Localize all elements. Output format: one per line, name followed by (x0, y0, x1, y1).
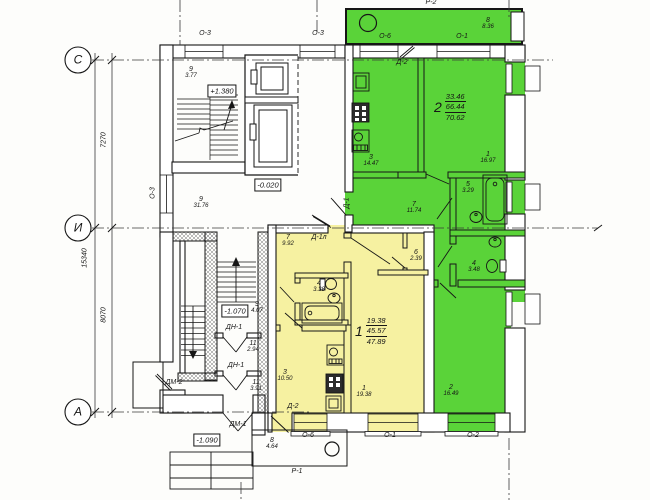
axis-label-i: И (74, 220, 83, 234)
apt1-living-area: 19.38 (366, 316, 387, 326)
room-label-vestibule-a: 112.94 (247, 340, 259, 354)
room-label-apt2-bath: 53.29 (462, 181, 474, 195)
level-entry: -1.090 (193, 434, 220, 447)
entrance-steps (170, 452, 253, 489)
mark-window-o3-a: О-3 (199, 30, 211, 37)
room-number: 6 (410, 249, 422, 256)
door-dn1-a (223, 337, 247, 352)
mark-door-dn1-b: ДН-1 (228, 362, 244, 369)
room-area: 19.38 (356, 392, 371, 398)
room-label-apt2-bedroom: 216.49 (443, 384, 458, 398)
level-lower: -1.070 (221, 305, 248, 318)
side-canopy (133, 362, 163, 408)
room-number: 9 (251, 301, 263, 308)
balcony-area (346, 9, 522, 44)
apartment-1-number: 1 (355, 323, 363, 339)
apt2-total-area: 70.62 (445, 113, 466, 122)
room-number: 8 (266, 437, 278, 444)
level-lobby: -0.020 (254, 179, 281, 192)
room-area: 3.77 (185, 73, 197, 79)
mark-door-d1-apt2: Д-1 (344, 197, 351, 208)
apt1-usable-area: 45.57 (366, 326, 387, 336)
room-area: 3.38 (313, 287, 325, 293)
mark-door-d1l-apt1: Д-1л (311, 234, 326, 241)
room-label-vestibule-b: 113.91 (250, 379, 262, 393)
elevator-small (251, 63, 288, 94)
room-number: 7 (407, 201, 422, 208)
room-number: 7 (282, 234, 294, 241)
mark-window-o3-left: О-3 (150, 187, 157, 199)
mark-railing-r1: Р-1 (292, 468, 303, 475)
dim-15340: 15340 (82, 248, 89, 267)
mark-window-o2-bottom: О-2 (467, 432, 479, 439)
room-number: 5 (462, 181, 474, 188)
room-number: 2 (443, 384, 458, 391)
room-label-stair-lower: 94.07 (251, 301, 263, 315)
room-label-apt2-living: 116.97 (480, 151, 495, 165)
room-area: 2.94 (247, 347, 259, 353)
apartment-2-label: 2 33.46 66.44 70.62 (434, 92, 466, 122)
elevator-shafts (245, 55, 298, 175)
dim-8070: 8070 (101, 307, 108, 323)
room-number: 8 (482, 17, 494, 24)
axis-bubbles (65, 47, 91, 425)
mark-window-o1-top: О-1 (456, 33, 468, 40)
room-area: 3.91 (250, 386, 262, 392)
floor-plan-page: С И А 7270 8070 15340 +1.380 -0.020 -1.0… (0, 0, 650, 500)
room-area: 3.29 (462, 188, 474, 194)
room-number: 4 (468, 260, 480, 267)
porch-column (325, 442, 339, 456)
room-label-apt1-bath: 43.38 (313, 280, 325, 294)
room-label-porch: 84.64 (266, 437, 278, 451)
room-area: 16.97 (480, 158, 495, 164)
room-area: 14.47 (363, 161, 378, 167)
room-label-stair-upper: 93.77 (185, 66, 197, 80)
room-number: 11 (247, 340, 259, 347)
apartment-2-number: 2 (434, 99, 442, 115)
room-area: 8.36 (482, 24, 494, 30)
room-area: 10.50 (277, 376, 292, 382)
door-dn1-b (223, 375, 247, 390)
stairs-upper (175, 93, 238, 160)
room-label-apt2-kitchen: 314.47 (363, 154, 378, 168)
room-number: 1 (356, 385, 371, 392)
floor-plan-drawing (0, 0, 650, 500)
axis-label-a: А (74, 404, 82, 418)
dim-7270: 7270 (101, 132, 108, 148)
room-area: 9.92 (282, 241, 294, 247)
room-area: 3.48 (468, 267, 480, 273)
mark-railing-r2: Р-2 (426, 0, 437, 6)
apartment-1-label: 1 19.38 45.57 47.89 (355, 316, 387, 346)
room-label-apt2-wc: 43.48 (468, 260, 480, 274)
room-label-apt2-hall: 711.74 (407, 201, 422, 215)
room-area: 16.49 (443, 391, 458, 397)
apt2-usable-area: 66.44 (445, 102, 466, 112)
mark-window-o6-bottom: О-6 (302, 432, 314, 439)
apt2-living-area: 33.46 (445, 92, 466, 102)
room-number: 9 (193, 196, 208, 203)
room-label-lobby: 931.76 (193, 196, 208, 210)
room-number: 11 (250, 379, 262, 386)
mark-window-o3-b: О-3 (312, 30, 324, 37)
axis-label-c: С (74, 52, 83, 66)
mark-door-dm1: ДМ-1 (230, 421, 247, 428)
room-number: 9 (185, 66, 197, 73)
mark-door-d2-apt1: Д-2 (287, 403, 298, 410)
stove-icon (352, 103, 369, 122)
apt1-total-area: 47.89 (366, 337, 387, 346)
room-number: 3 (363, 154, 378, 161)
room-number: 4 (313, 280, 325, 287)
room-area: 2.39 (410, 256, 422, 262)
mark-door-dm2: ДМ-2 (166, 379, 183, 386)
room-label-apt2-balcony: 88.36 (482, 17, 494, 31)
stove-icon (326, 374, 343, 393)
mark-door-d2-balcony: Д-2 (396, 59, 407, 66)
room-area: 11.74 (407, 208, 422, 214)
room-area: 31.76 (193, 203, 208, 209)
room-number: 3 (277, 369, 292, 376)
room-area: 4.07 (251, 308, 263, 314)
room-label-apt1-storage: 62.39 (410, 249, 422, 263)
mark-door-dn1-a: ДН-1 (226, 324, 242, 331)
room-label-apt1-living: 119.38 (356, 385, 371, 399)
room-label-apt1-kitchen: 310.50 (277, 369, 292, 383)
room-area: 4.64 (266, 444, 278, 450)
mark-window-o1-bottom: О-1 (384, 432, 396, 439)
elevator-large (250, 105, 292, 167)
mark-window-o6-top: О-6 (379, 33, 391, 40)
room-label-apt1-hall: 79.92 (282, 234, 294, 248)
room-number: 1 (480, 151, 495, 158)
level-upper: +1.380 (207, 85, 236, 98)
